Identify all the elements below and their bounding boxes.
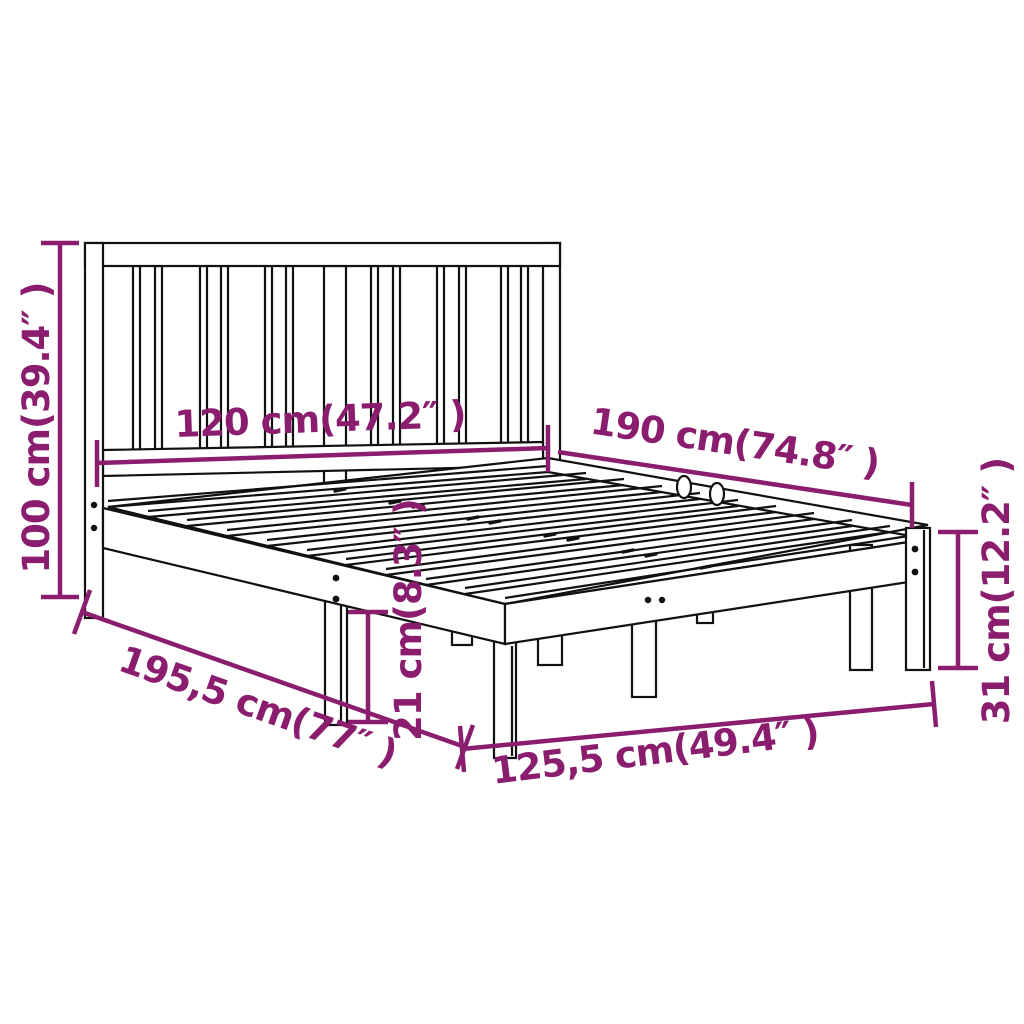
mounting-hook <box>710 483 724 505</box>
diagram-canvas: 100 cm(39.4″ ) 120 cm(47.2″ ) 190 cm(74.… <box>0 0 1024 1024</box>
headboard-top-rail <box>85 243 560 266</box>
dimension-label: 31 cm(12.2″ ) <box>975 458 1018 724</box>
headboard-left-post <box>85 243 103 618</box>
dimension-label: 120 cm(47.2″ ) <box>174 393 466 446</box>
dimension-label: 125,5 cm(49.4″ ) <box>489 710 821 793</box>
bed-frame-dimension-diagram: 100 cm(39.4″ ) 120 cm(47.2″ ) 190 cm(74.… <box>0 0 1024 1024</box>
mounting-hook <box>677 476 691 498</box>
dimension-frame-width: 125,5 cm(49.4″ ) <box>460 681 936 793</box>
dimension-headboard-height: 100 cm(39.4″ ) <box>15 243 79 597</box>
dimension-label: 100 cm(39.4″ ) <box>15 282 58 573</box>
dimension-line <box>938 532 978 668</box>
dimension-label: 195,5 cm(77″ ) <box>113 638 402 776</box>
dimension-footend-height: 31 cm(12.2″ ) <box>938 458 1018 724</box>
dimension-label: 21 cm(8.3″ ) <box>387 499 430 741</box>
